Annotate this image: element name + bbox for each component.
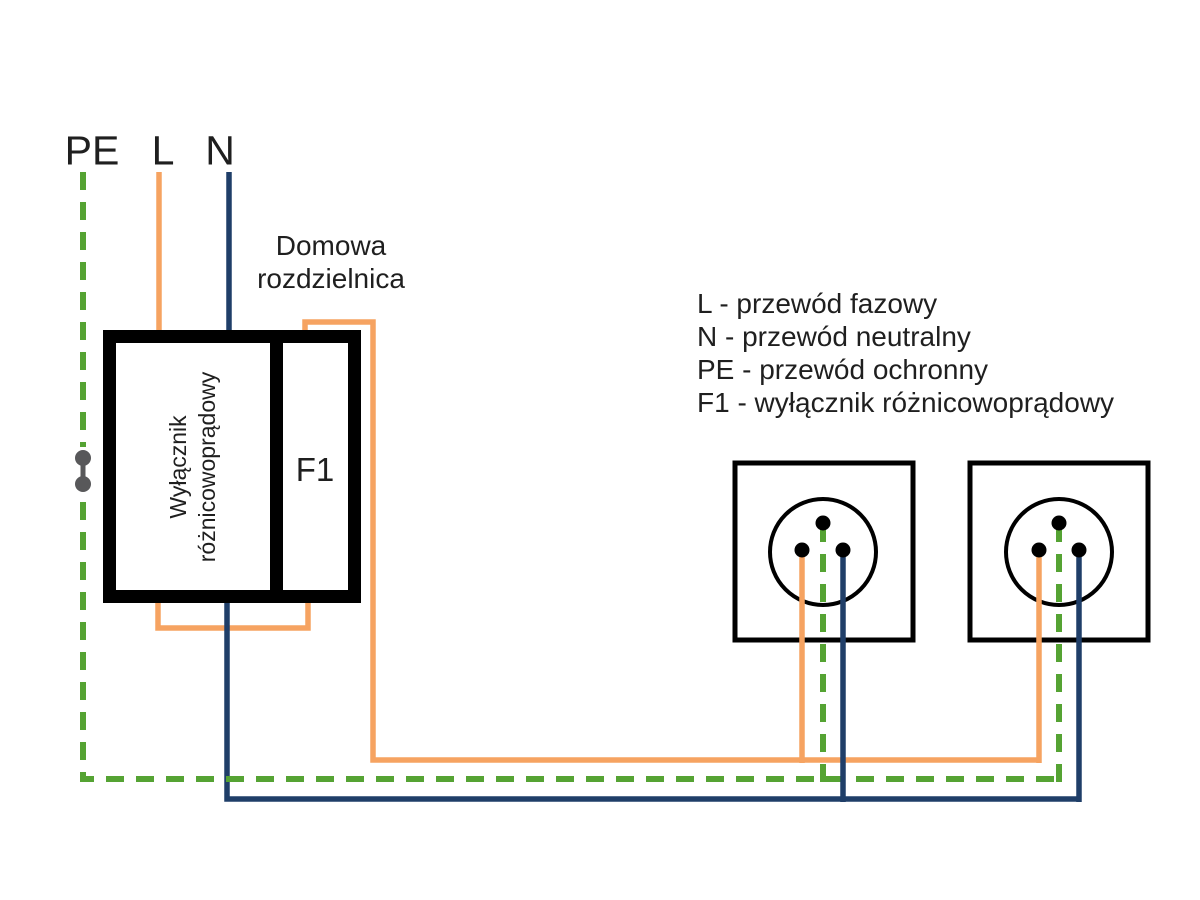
panel-title-line1: Domowa xyxy=(257,229,405,262)
outlet-1-n-pin xyxy=(836,543,851,558)
legend-item-n: N - przewód neutralny xyxy=(697,320,1114,353)
legend-item-f1: F1 - wyłącznik różnicowoprądowy xyxy=(697,386,1114,419)
panel-title: Domowa rozdzielnica xyxy=(257,229,405,295)
pe-splice-connector xyxy=(75,447,91,493)
legend-item-l: L - przewód fazowy xyxy=(697,287,1114,320)
pe-source-label: PE xyxy=(65,128,120,175)
l-source-label: L xyxy=(152,128,175,175)
outlet-1 xyxy=(735,463,913,640)
pe-splice-dot-bottom xyxy=(75,476,91,492)
legend: L - przewód fazowy N - przewód neutralny… xyxy=(697,287,1114,419)
breaker-label: F1 xyxy=(296,451,335,489)
rcd-device-label: Wyłącznik różnicowoprądowy xyxy=(164,372,222,562)
legend-item-pe: PE - przewód ochronny xyxy=(697,353,1114,386)
rcd-device-label-line1: Wyłącznik xyxy=(164,372,193,562)
outlet-2 xyxy=(970,463,1148,640)
panel-title-line2: rozdzielnica xyxy=(257,262,405,295)
outlet-1-pe-pin xyxy=(816,516,831,531)
n-wire-bus xyxy=(227,597,1079,799)
outlet-2-l-pin xyxy=(1032,543,1047,558)
n-source-label: N xyxy=(205,128,235,175)
pe-splice-dot-top xyxy=(75,450,91,466)
outlet-1-l-pin xyxy=(795,543,810,558)
outlet-2-n-pin xyxy=(1072,543,1087,558)
wiring-diagram: PE L N Domowa rozdzielnica Wyłącznik róż… xyxy=(0,0,1200,900)
outlet-2-pe-pin xyxy=(1052,516,1067,531)
rcd-device-label-line2: różnicowoprądowy xyxy=(193,372,222,562)
